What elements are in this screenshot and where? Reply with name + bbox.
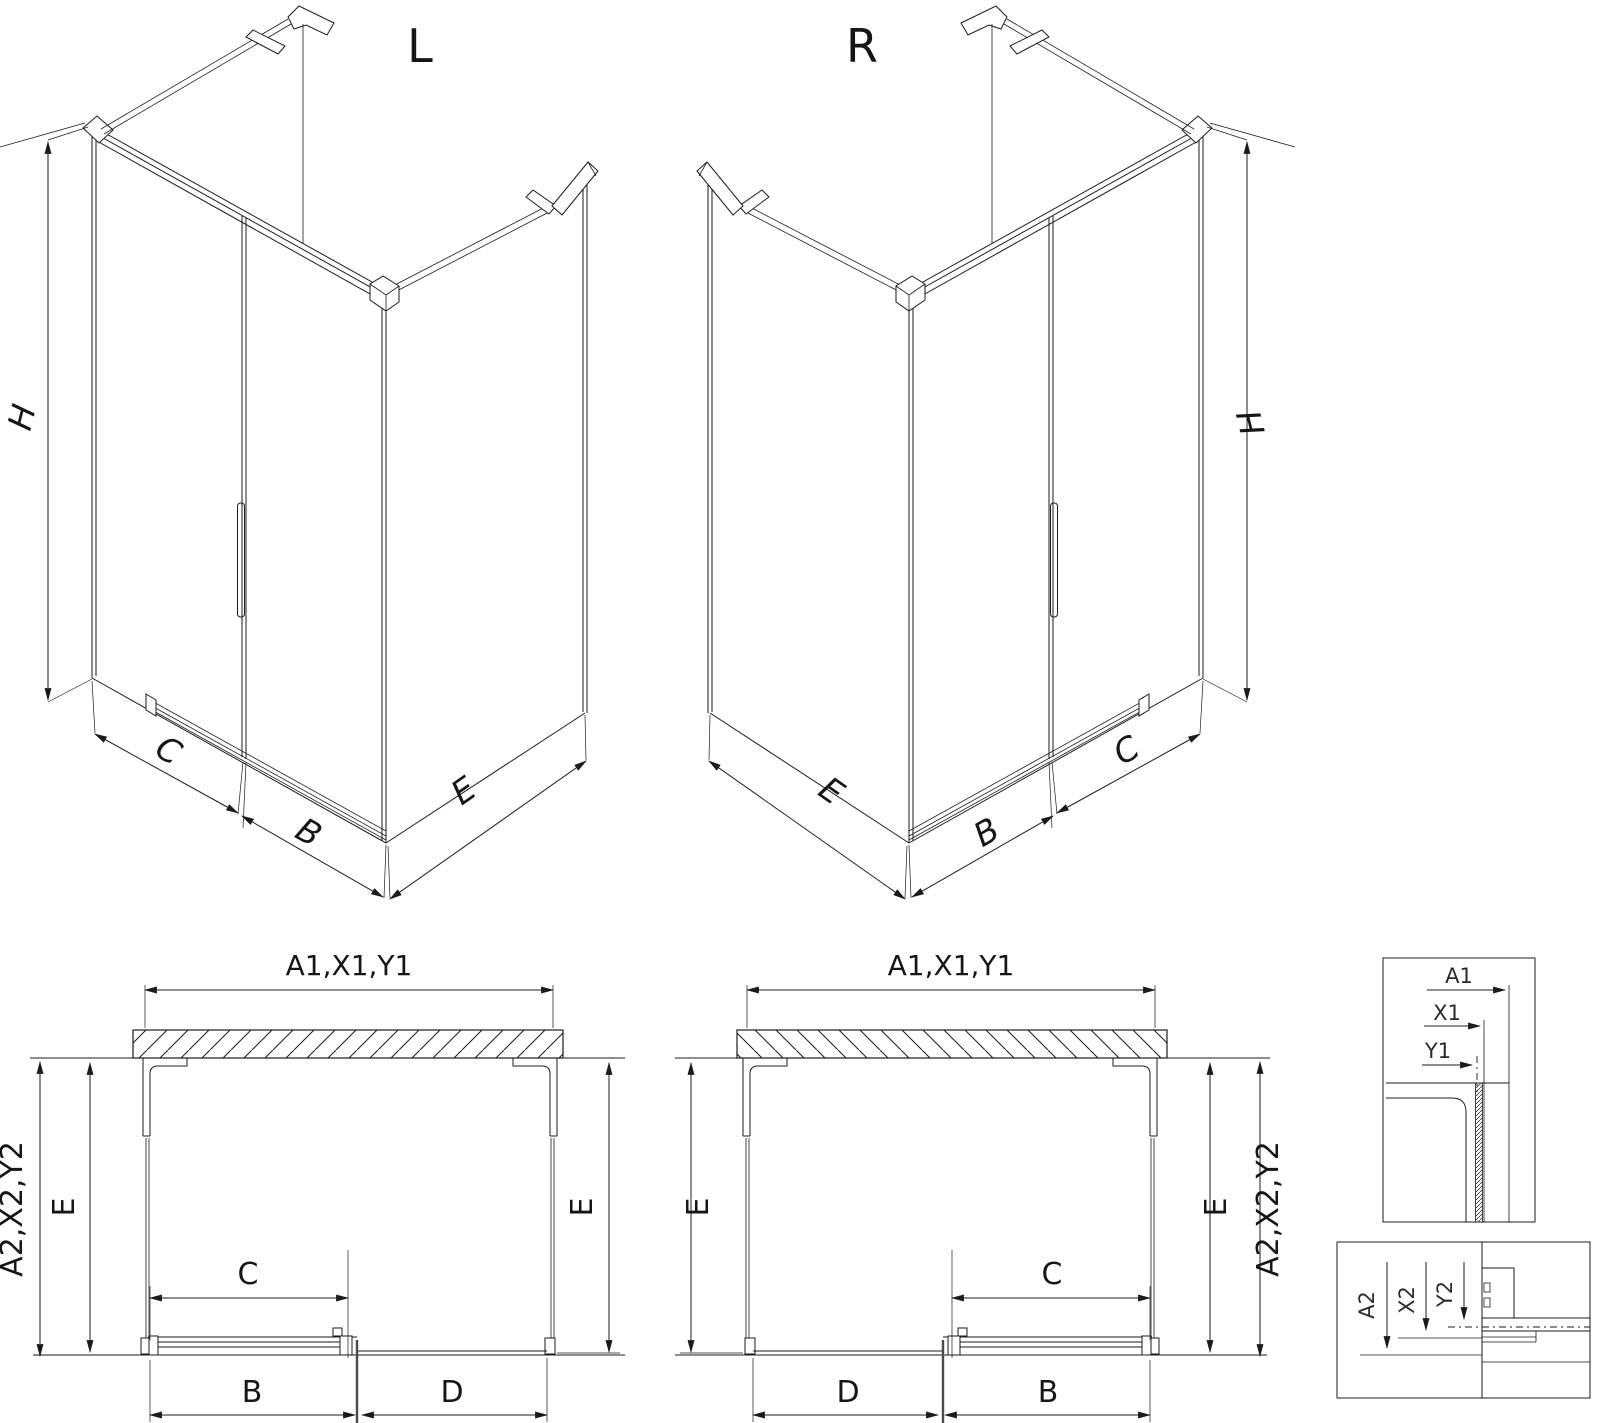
plan-left-dim-a2: A2,X2,Y2 bbox=[0, 1141, 30, 1277]
iso-right-dim-e: E bbox=[812, 769, 852, 813]
iso-left-title: L bbox=[407, 19, 433, 73]
plan-left-dim-c: C bbox=[238, 1257, 259, 1292]
shower-enclosure-technical-drawing: L H C B E R H C B E A1,X1,Y1 A2,X2,Y2 E … bbox=[0, 0, 1600, 1423]
iso-left-dim-h: H bbox=[0, 400, 44, 434]
iso-right-title: R bbox=[846, 19, 878, 73]
plan-left-dim-b: B bbox=[242, 1375, 263, 1410]
iso-right-dim-b: B bbox=[967, 809, 1006, 854]
detail-top-dim-y1: Y1 bbox=[1424, 1039, 1451, 1063]
detail-top-dim-a1: A1 bbox=[1445, 964, 1473, 988]
iso-left-dim-b: B bbox=[289, 809, 328, 854]
plan-right-dim-b: B bbox=[1038, 1375, 1059, 1410]
detail-bottom-dim-a2: A2 bbox=[1355, 1291, 1379, 1319]
iso-right-dim-c: C bbox=[1107, 727, 1146, 772]
plan-left-dim-d: D bbox=[440, 1375, 463, 1410]
plan-right-dim-a1: A1,X1,Y1 bbox=[888, 949, 1015, 982]
plan-right-dim-e-outer: E bbox=[1199, 1198, 1234, 1217]
plan-right-dim-e-inner: E bbox=[681, 1198, 716, 1217]
iso-view-left: L H C B E bbox=[0, 6, 598, 899]
detail-bottom-dim-x2: X2 bbox=[1395, 1286, 1419, 1314]
plan-left-dim-e-outer: E bbox=[47, 1198, 82, 1217]
plan-right-dim-c: C bbox=[1042, 1257, 1063, 1292]
plan-right-dim-d: D bbox=[836, 1375, 859, 1410]
drawing-sheet: L H C B E R H C B E A1,X1,Y1 A2,X2,Y2 E … bbox=[0, 0, 1600, 1423]
plan-right-dim-a2: A2,X2,Y2 bbox=[1251, 1141, 1286, 1277]
plan-left-dim-e-inner: E bbox=[565, 1198, 600, 1217]
iso-left-dim-e: E bbox=[444, 769, 484, 813]
plan-view-right: A1,X1,Y1 A2,X2,Y2 E E C B D bbox=[675, 949, 1286, 1423]
plan-left-dim-a1: A1,X1,Y1 bbox=[286, 949, 413, 982]
detail-box-top: A1 X1 Y1 bbox=[1383, 958, 1535, 1222]
detail-top-dim-x1: X1 bbox=[1433, 1001, 1461, 1025]
iso-right-dim-h: H bbox=[1229, 406, 1273, 440]
iso-view-right: R H C B E bbox=[697, 6, 1295, 899]
iso-left-dim-c: C bbox=[149, 727, 188, 772]
detail-box-bottom: A2 X2 Y2 bbox=[1337, 1242, 1590, 1398]
plan-view-left: A1,X1,Y1 A2,X2,Y2 E E C B D bbox=[0, 949, 625, 1423]
detail-bottom-dim-y2: Y2 bbox=[1433, 1281, 1457, 1308]
